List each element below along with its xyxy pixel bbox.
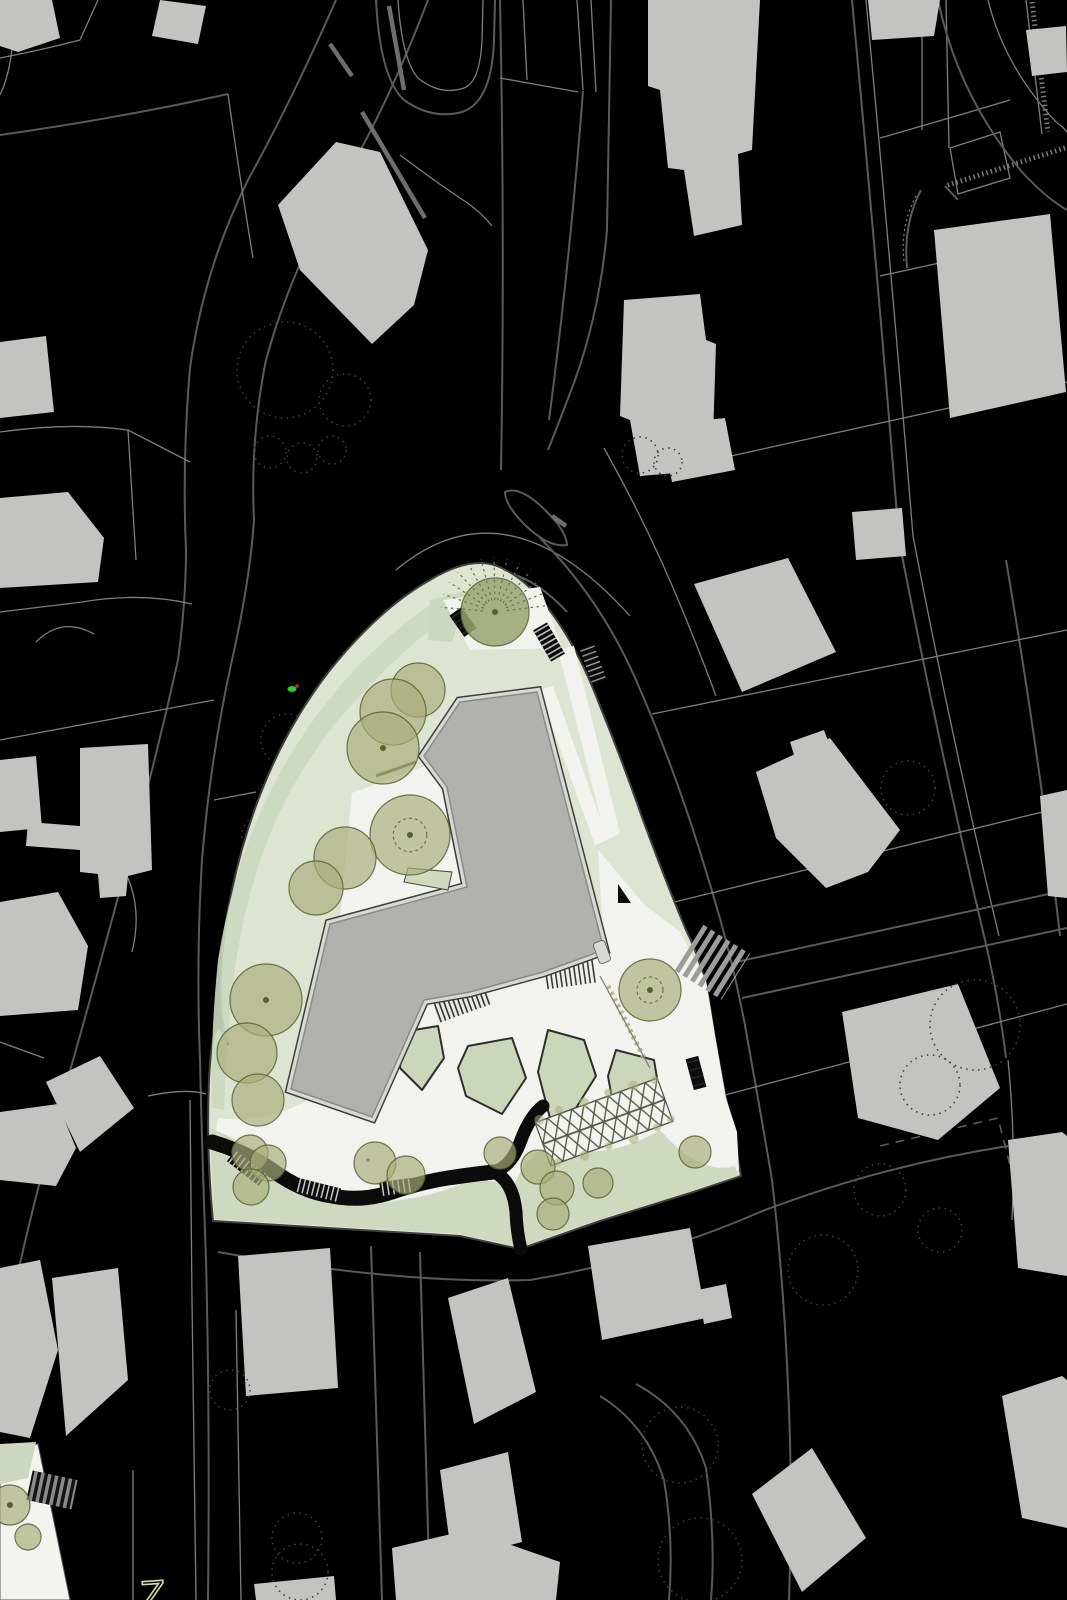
street-label-glyph: Z	[140, 1574, 167, 1600]
marker-green-dot	[288, 686, 297, 692]
tree-canopy	[537, 1198, 569, 1230]
tree-canopy	[289, 861, 343, 915]
context-building	[238, 1248, 338, 1396]
context-building	[152, 0, 206, 44]
tree-canopy	[387, 1156, 425, 1194]
marker-red-dot	[295, 684, 299, 688]
tree-dot	[347, 712, 419, 784]
tree-ring	[370, 795, 450, 875]
tree-canopy	[583, 1168, 613, 1198]
context-building	[698, 1284, 732, 1324]
tree-canopy	[232, 1074, 284, 1126]
context-building	[934, 214, 1066, 418]
site-plan-canvas: Z	[0, 0, 1067, 1600]
context-building	[1026, 26, 1067, 76]
context-building	[868, 0, 940, 40]
context-building	[852, 508, 906, 560]
tree-canopy	[217, 1023, 277, 1083]
site-plan-page: Z	[0, 0, 1067, 1600]
tree-canopy	[484, 1137, 516, 1169]
context-building	[0, 756, 42, 832]
tree-canopy	[233, 1169, 269, 1205]
tree-canopy	[679, 1136, 711, 1168]
tree-ring	[619, 959, 681, 1021]
tree-canopy	[15, 1524, 41, 1550]
context-building	[0, 336, 54, 418]
